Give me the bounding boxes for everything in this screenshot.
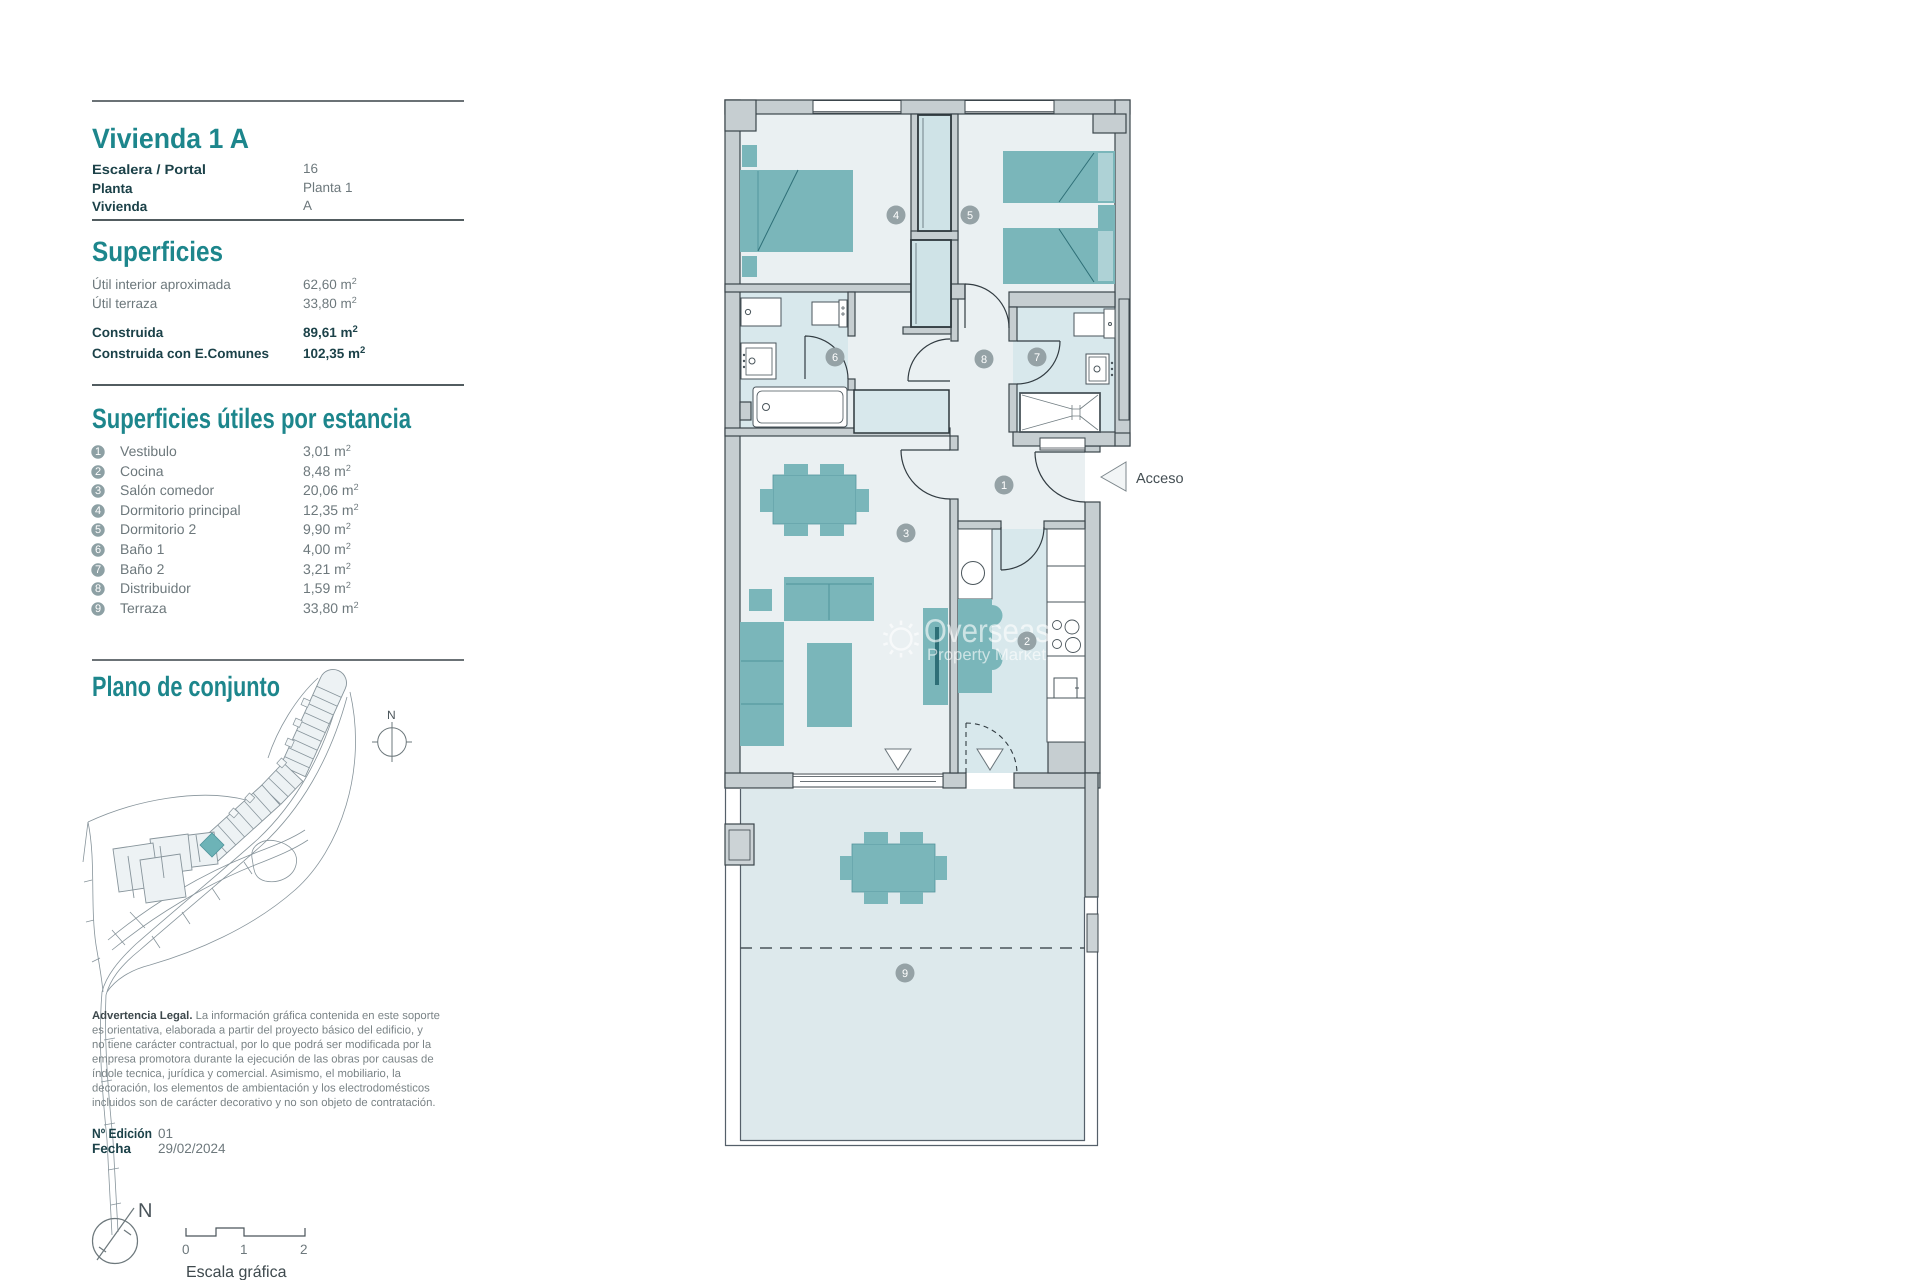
svg-text:Cocina: Cocina xyxy=(120,463,164,479)
svg-text:Advertencia Legal. La informac: Advertencia Legal. La información gráfic… xyxy=(92,1010,440,1022)
svg-text:2: 2 xyxy=(95,466,101,478)
svg-text:Dormitorio 2: Dormitorio 2 xyxy=(120,521,196,537)
svg-text:1,59 m2: 1,59 m2 xyxy=(303,580,351,596)
svg-text:9: 9 xyxy=(95,603,101,615)
svg-text:decoración, los elementos de a: decoración, los elementos de ambientació… xyxy=(92,1083,430,1095)
svg-text:Salón comedor: Salón comedor xyxy=(120,482,215,498)
svg-text:N: N xyxy=(387,708,396,722)
svg-text:9: 9 xyxy=(902,968,908,980)
svg-text:Baño 2: Baño 2 xyxy=(120,561,165,577)
svg-text:01: 01 xyxy=(158,1126,173,1141)
svg-text:8: 8 xyxy=(981,354,987,366)
svg-text:Escalera / Portal: Escalera / Portal xyxy=(92,162,206,177)
svg-text:9,90 m2: 9,90 m2 xyxy=(303,521,351,537)
svg-text:3,01 m2: 3,01 m2 xyxy=(303,443,351,459)
svg-text:1: 1 xyxy=(95,446,101,458)
svg-text:Nº Edición: Nº Edición xyxy=(92,1126,152,1141)
svg-text:33,80 m2: 33,80 m2 xyxy=(303,600,359,616)
svg-text:Baño 1: Baño 1 xyxy=(120,541,165,557)
svg-text:6: 6 xyxy=(95,544,101,556)
svg-text:es orientativa, elaborada a pa: es orientativa, elaborada a partir del p… xyxy=(92,1025,423,1037)
svg-text:3: 3 xyxy=(95,485,101,497)
svg-text:Superficies útiles por estanci: Superficies útiles por estancia xyxy=(92,403,411,434)
svg-text:89,61 m2: 89,61 m2 xyxy=(303,324,358,340)
svg-text:Construida con E.Comunes: Construida con E.Comunes xyxy=(92,346,269,361)
svg-text:102,35 m2: 102,35 m2 xyxy=(303,345,365,361)
svg-text:Dormitorio principal: Dormitorio principal xyxy=(120,502,241,518)
svg-text:12,35 m2: 12,35 m2 xyxy=(303,502,359,518)
svg-text:Vivienda: Vivienda xyxy=(92,199,148,214)
svg-text:3: 3 xyxy=(903,528,909,540)
svg-text:Acceso: Acceso xyxy=(1136,471,1184,487)
svg-text:3,21 m2: 3,21 m2 xyxy=(303,561,351,577)
svg-text:Vivienda 1 A: Vivienda 1 A xyxy=(92,123,249,154)
svg-text:1: 1 xyxy=(1001,480,1007,492)
svg-text:33,80 m2: 33,80 m2 xyxy=(303,295,357,311)
svg-text:2: 2 xyxy=(1024,636,1030,648)
svg-text:20,06 m2: 20,06 m2 xyxy=(303,482,359,498)
svg-text:Construida: Construida xyxy=(92,325,164,340)
svg-text:Terraza: Terraza xyxy=(120,600,167,616)
svg-text:1: 1 xyxy=(240,1242,248,1257)
svg-text:0: 0 xyxy=(182,1242,190,1257)
svg-text:Distribuidor: Distribuidor xyxy=(120,580,191,596)
svg-text:N: N xyxy=(138,1200,152,1222)
svg-text:Planta: Planta xyxy=(92,181,133,196)
svg-text:Superficies: Superficies xyxy=(92,236,223,267)
svg-text:16: 16 xyxy=(303,161,318,176)
svg-text:4: 4 xyxy=(893,210,899,222)
svg-text:Planta 1: Planta 1 xyxy=(303,180,353,195)
svg-text:2: 2 xyxy=(300,1242,308,1257)
svg-text:7: 7 xyxy=(95,564,101,576)
svg-text:incluidos son de carácter deco: incluidos son de carácter decorativo y n… xyxy=(92,1097,436,1109)
svg-text:62,60 m2: 62,60 m2 xyxy=(303,276,357,292)
svg-text:4,00 m2: 4,00 m2 xyxy=(303,541,351,557)
svg-text:A: A xyxy=(303,198,312,213)
svg-text:Fecha: Fecha xyxy=(92,1141,132,1156)
svg-text:índole tecnica, jurídica y com: índole tecnica, jurídica y comercial. As… xyxy=(92,1068,402,1080)
svg-text:5: 5 xyxy=(967,210,973,222)
svg-text:6: 6 xyxy=(832,352,838,364)
svg-text:Escala gráfica: Escala gráfica xyxy=(186,1264,287,1280)
svg-text:no tiene carácter contractual,: no tiene carácter contractual, por lo qu… xyxy=(92,1039,432,1051)
svg-text:5: 5 xyxy=(95,524,101,536)
svg-text:8: 8 xyxy=(95,583,101,595)
svg-text:8,48 m2: 8,48 m2 xyxy=(303,463,351,479)
svg-text:Útil terraza: Útil terraza xyxy=(92,296,158,311)
svg-text:Útil interior aproximada: Útil interior aproximada xyxy=(92,277,231,292)
svg-text:4: 4 xyxy=(95,505,101,517)
svg-text:Plano de conjunto: Plano de conjunto xyxy=(92,671,280,702)
svg-text:29/02/2024: 29/02/2024 xyxy=(158,1141,226,1156)
svg-text:Vestibulo: Vestibulo xyxy=(120,443,177,459)
svg-text:7: 7 xyxy=(1034,352,1040,364)
svg-text:empresa promotora durante la e: empresa promotora durante la ejecución d… xyxy=(92,1054,434,1066)
